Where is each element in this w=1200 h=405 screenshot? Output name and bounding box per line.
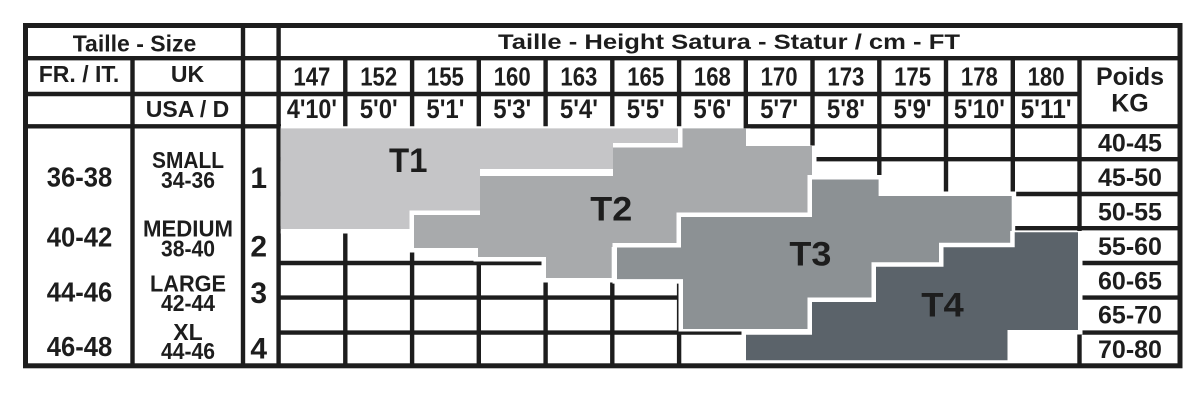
svg-text:2: 2: [250, 231, 267, 264]
svg-text:4: 4: [250, 333, 267, 366]
svg-text:T1: T1: [389, 142, 428, 180]
svg-text:38-40: 38-40: [161, 236, 215, 262]
svg-text:Taille - Size: Taille - Size: [73, 31, 197, 57]
svg-text:44-46: 44-46: [47, 276, 113, 307]
svg-text:T2: T2: [590, 191, 632, 229]
svg-text:147: 147: [293, 62, 330, 92]
svg-text:5'8': 5'8': [827, 94, 865, 124]
svg-text:1: 1: [250, 162, 267, 195]
svg-text:34-36: 34-36: [161, 167, 215, 193]
svg-text:5'1': 5'1': [426, 94, 464, 124]
svg-text:KG: KG: [1111, 90, 1149, 118]
svg-text:5'10': 5'10': [954, 94, 1005, 124]
svg-text:5'3': 5'3': [493, 94, 531, 124]
svg-text:155: 155: [427, 62, 464, 92]
svg-text:T3: T3: [789, 236, 831, 274]
svg-text:USA / D: USA / D: [146, 96, 230, 122]
svg-text:T4: T4: [921, 286, 964, 324]
svg-text:5'4': 5'4': [560, 94, 598, 124]
svg-text:36-38: 36-38: [47, 161, 113, 192]
svg-text:UK: UK: [171, 61, 205, 87]
svg-text:5'5': 5'5': [627, 94, 665, 124]
svg-text:44-46: 44-46: [161, 338, 215, 364]
svg-text:163: 163: [560, 62, 597, 92]
svg-text:5'9': 5'9': [894, 94, 932, 124]
svg-text:173: 173: [827, 62, 864, 92]
svg-text:160: 160: [494, 62, 531, 92]
svg-text:65-70: 65-70: [1098, 302, 1162, 330]
svg-text:165: 165: [627, 62, 664, 92]
svg-text:46-48: 46-48: [47, 331, 113, 362]
svg-text:40-42: 40-42: [47, 222, 113, 253]
svg-text:40-45: 40-45: [1098, 130, 1162, 158]
svg-text:170: 170: [761, 62, 798, 92]
svg-text:5'7': 5'7': [760, 94, 798, 124]
svg-text:175: 175: [894, 62, 931, 92]
svg-text:5'6': 5'6': [693, 94, 731, 124]
svg-text:Taille - Height Satura - Statu: Taille - Height Satura - Statur / cm - F…: [498, 31, 960, 54]
svg-text:55-60: 55-60: [1098, 233, 1162, 261]
svg-text:152: 152: [360, 62, 397, 92]
svg-text:42-44: 42-44: [161, 290, 215, 316]
svg-text:5'11': 5'11': [1021, 94, 1072, 124]
svg-text:60-65: 60-65: [1098, 267, 1162, 295]
svg-text:4'10': 4'10': [287, 94, 337, 124]
svg-text:178: 178: [961, 62, 998, 92]
svg-text:Poids: Poids: [1096, 63, 1164, 91]
svg-text:168: 168: [694, 62, 731, 92]
svg-text:FR. / IT.: FR. / IT.: [39, 61, 120, 87]
svg-text:70-80: 70-80: [1098, 336, 1162, 364]
svg-text:180: 180: [1028, 62, 1065, 92]
svg-text:50-55: 50-55: [1098, 198, 1162, 226]
svg-text:5'0': 5'0': [360, 94, 398, 124]
svg-text:3: 3: [250, 277, 267, 310]
svg-text:45-50: 45-50: [1098, 164, 1162, 192]
